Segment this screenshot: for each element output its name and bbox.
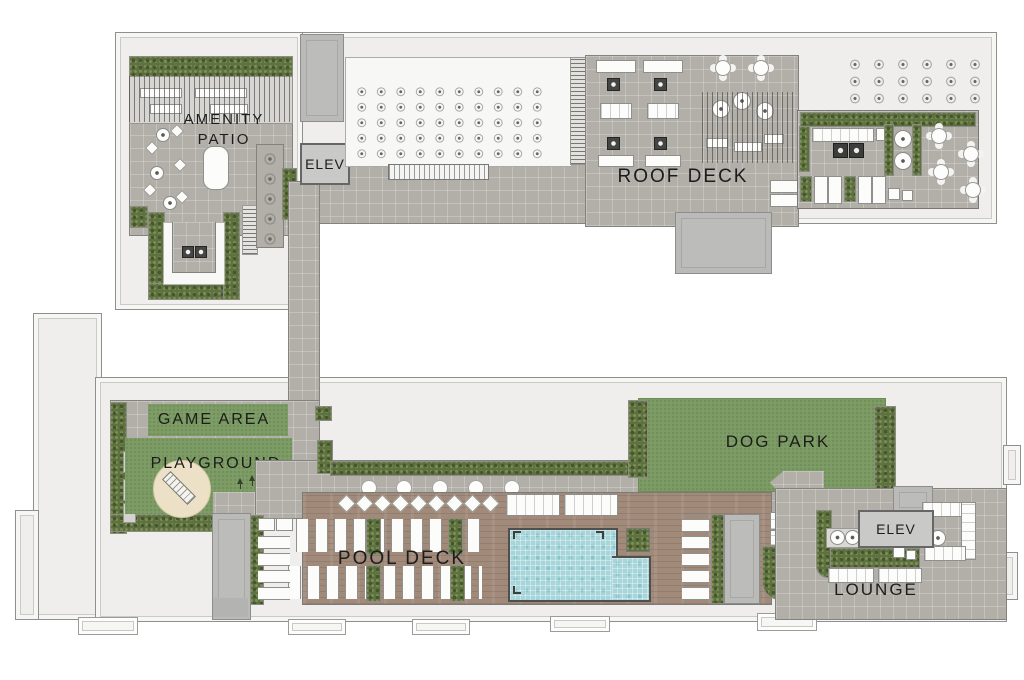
dining-table-4 (963, 146, 979, 162)
pool-ladder (513, 531, 521, 539)
dining-table-4 (715, 60, 731, 76)
roof-sofa (596, 60, 636, 73)
dining-table-4 (753, 60, 769, 76)
terrace-table-grid (352, 84, 548, 161)
pool-wall-structure (724, 514, 760, 604)
coffee-table (647, 103, 679, 119)
label-elev-lower: ELEV (876, 521, 916, 537)
dog-park-hedge-left (628, 400, 648, 478)
swimming-pool-extension (612, 556, 651, 602)
lower-stair-landing (213, 598, 248, 617)
deck-planter (450, 565, 465, 602)
kitchen-hedge-left (799, 126, 810, 172)
chaise-lounge (770, 180, 798, 193)
swimming-pool-main (508, 528, 618, 602)
vestibule-table-column (256, 144, 284, 248)
balcony-bump-3 (412, 619, 470, 635)
label-dog-park: DOG PARK (726, 432, 830, 452)
label-amenity-patio: AMENITY PATIO (184, 110, 265, 150)
planter-strip (912, 124, 922, 176)
firepit-paving (172, 222, 216, 273)
roof-deck-pergola (702, 92, 795, 163)
chaise-lounge (858, 176, 872, 204)
bistro-table (163, 196, 177, 210)
cabana-bench (276, 518, 293, 531)
label-lounge: LOUNGE (834, 580, 918, 600)
balcony-bump-2 (288, 619, 346, 635)
side-table (654, 78, 667, 91)
lower-left-wing-outline (33, 313, 102, 620)
chaise-lounge (770, 194, 798, 207)
planter-box (844, 176, 856, 202)
poolside-hedge-column (711, 514, 724, 604)
planter-box (800, 176, 812, 202)
floor-plan: AMENITY PATIO ELEV ROOF DECK (0, 0, 1024, 680)
fire-table (195, 246, 207, 258)
side-table (607, 78, 620, 91)
mechanical-roof-box (675, 212, 772, 274)
balcony-bump-1 (78, 617, 138, 635)
label-amenity-line2: PATIO (184, 130, 265, 150)
patio-hedge-patch (130, 206, 148, 228)
label-elev-upper: ELEV (305, 156, 345, 172)
upper-elevator: ELEV (300, 143, 350, 185)
lounge-sofa (924, 546, 966, 561)
shrub-symbol (236, 478, 244, 489)
balcony-bump-4 (550, 616, 610, 632)
dining-table (203, 146, 229, 190)
ottoman (888, 188, 900, 200)
pool-planter-square (626, 528, 650, 552)
chaise-lounge (872, 176, 886, 204)
label-pool-deck: POOL DECK (338, 548, 466, 570)
bbq-grill (833, 143, 848, 158)
roof-core-block (300, 34, 344, 122)
label-game-area: GAME AREA (158, 411, 270, 429)
side-table (654, 137, 667, 150)
chaise-lounge (828, 176, 842, 204)
bistro-table (150, 166, 164, 180)
pool-sofa (564, 494, 618, 516)
pool-ladder (596, 531, 604, 539)
round-table (894, 152, 912, 170)
top-right-table-grid (843, 56, 985, 108)
chaise-lounge (814, 176, 828, 204)
ottoman (906, 550, 916, 560)
plaza-hedge-top (330, 461, 642, 476)
roof-sofa (643, 60, 683, 73)
lower-elevator: ELEV (858, 510, 934, 548)
lounge-grill (830, 530, 845, 545)
firepit-hedge-right (223, 212, 240, 300)
kitchen-counter-sofa (812, 128, 874, 142)
label-amenity-line1: AMENITY (184, 110, 265, 130)
dining-table-4 (965, 182, 981, 198)
terrace-stairs (388, 164, 489, 180)
amenity-patio-hedge-top (129, 56, 293, 78)
pool-ladder (513, 586, 521, 594)
bbq-grill (849, 143, 864, 158)
dining-table-4 (931, 128, 947, 144)
round-table (894, 130, 912, 148)
deck-planter (366, 565, 381, 602)
bistro-table (156, 128, 170, 142)
corridor-hedge (315, 406, 332, 421)
planter-strip (884, 124, 894, 176)
coffee-table (600, 103, 632, 119)
side-table (607, 137, 620, 150)
right-edge-tab-1 (1003, 445, 1021, 485)
dining-table-4 (933, 164, 949, 180)
lower-left-wing-extension (15, 510, 39, 620)
poolside-chair-column (682, 514, 709, 600)
label-roof-deck: ROOF DECK (618, 166, 749, 188)
fire-table (182, 246, 194, 258)
cabana-bench (258, 518, 275, 531)
pool-sofa (506, 494, 560, 516)
ottoman (902, 190, 913, 201)
cabana-column (258, 536, 290, 600)
dog-park-hedge-right (874, 406, 896, 492)
